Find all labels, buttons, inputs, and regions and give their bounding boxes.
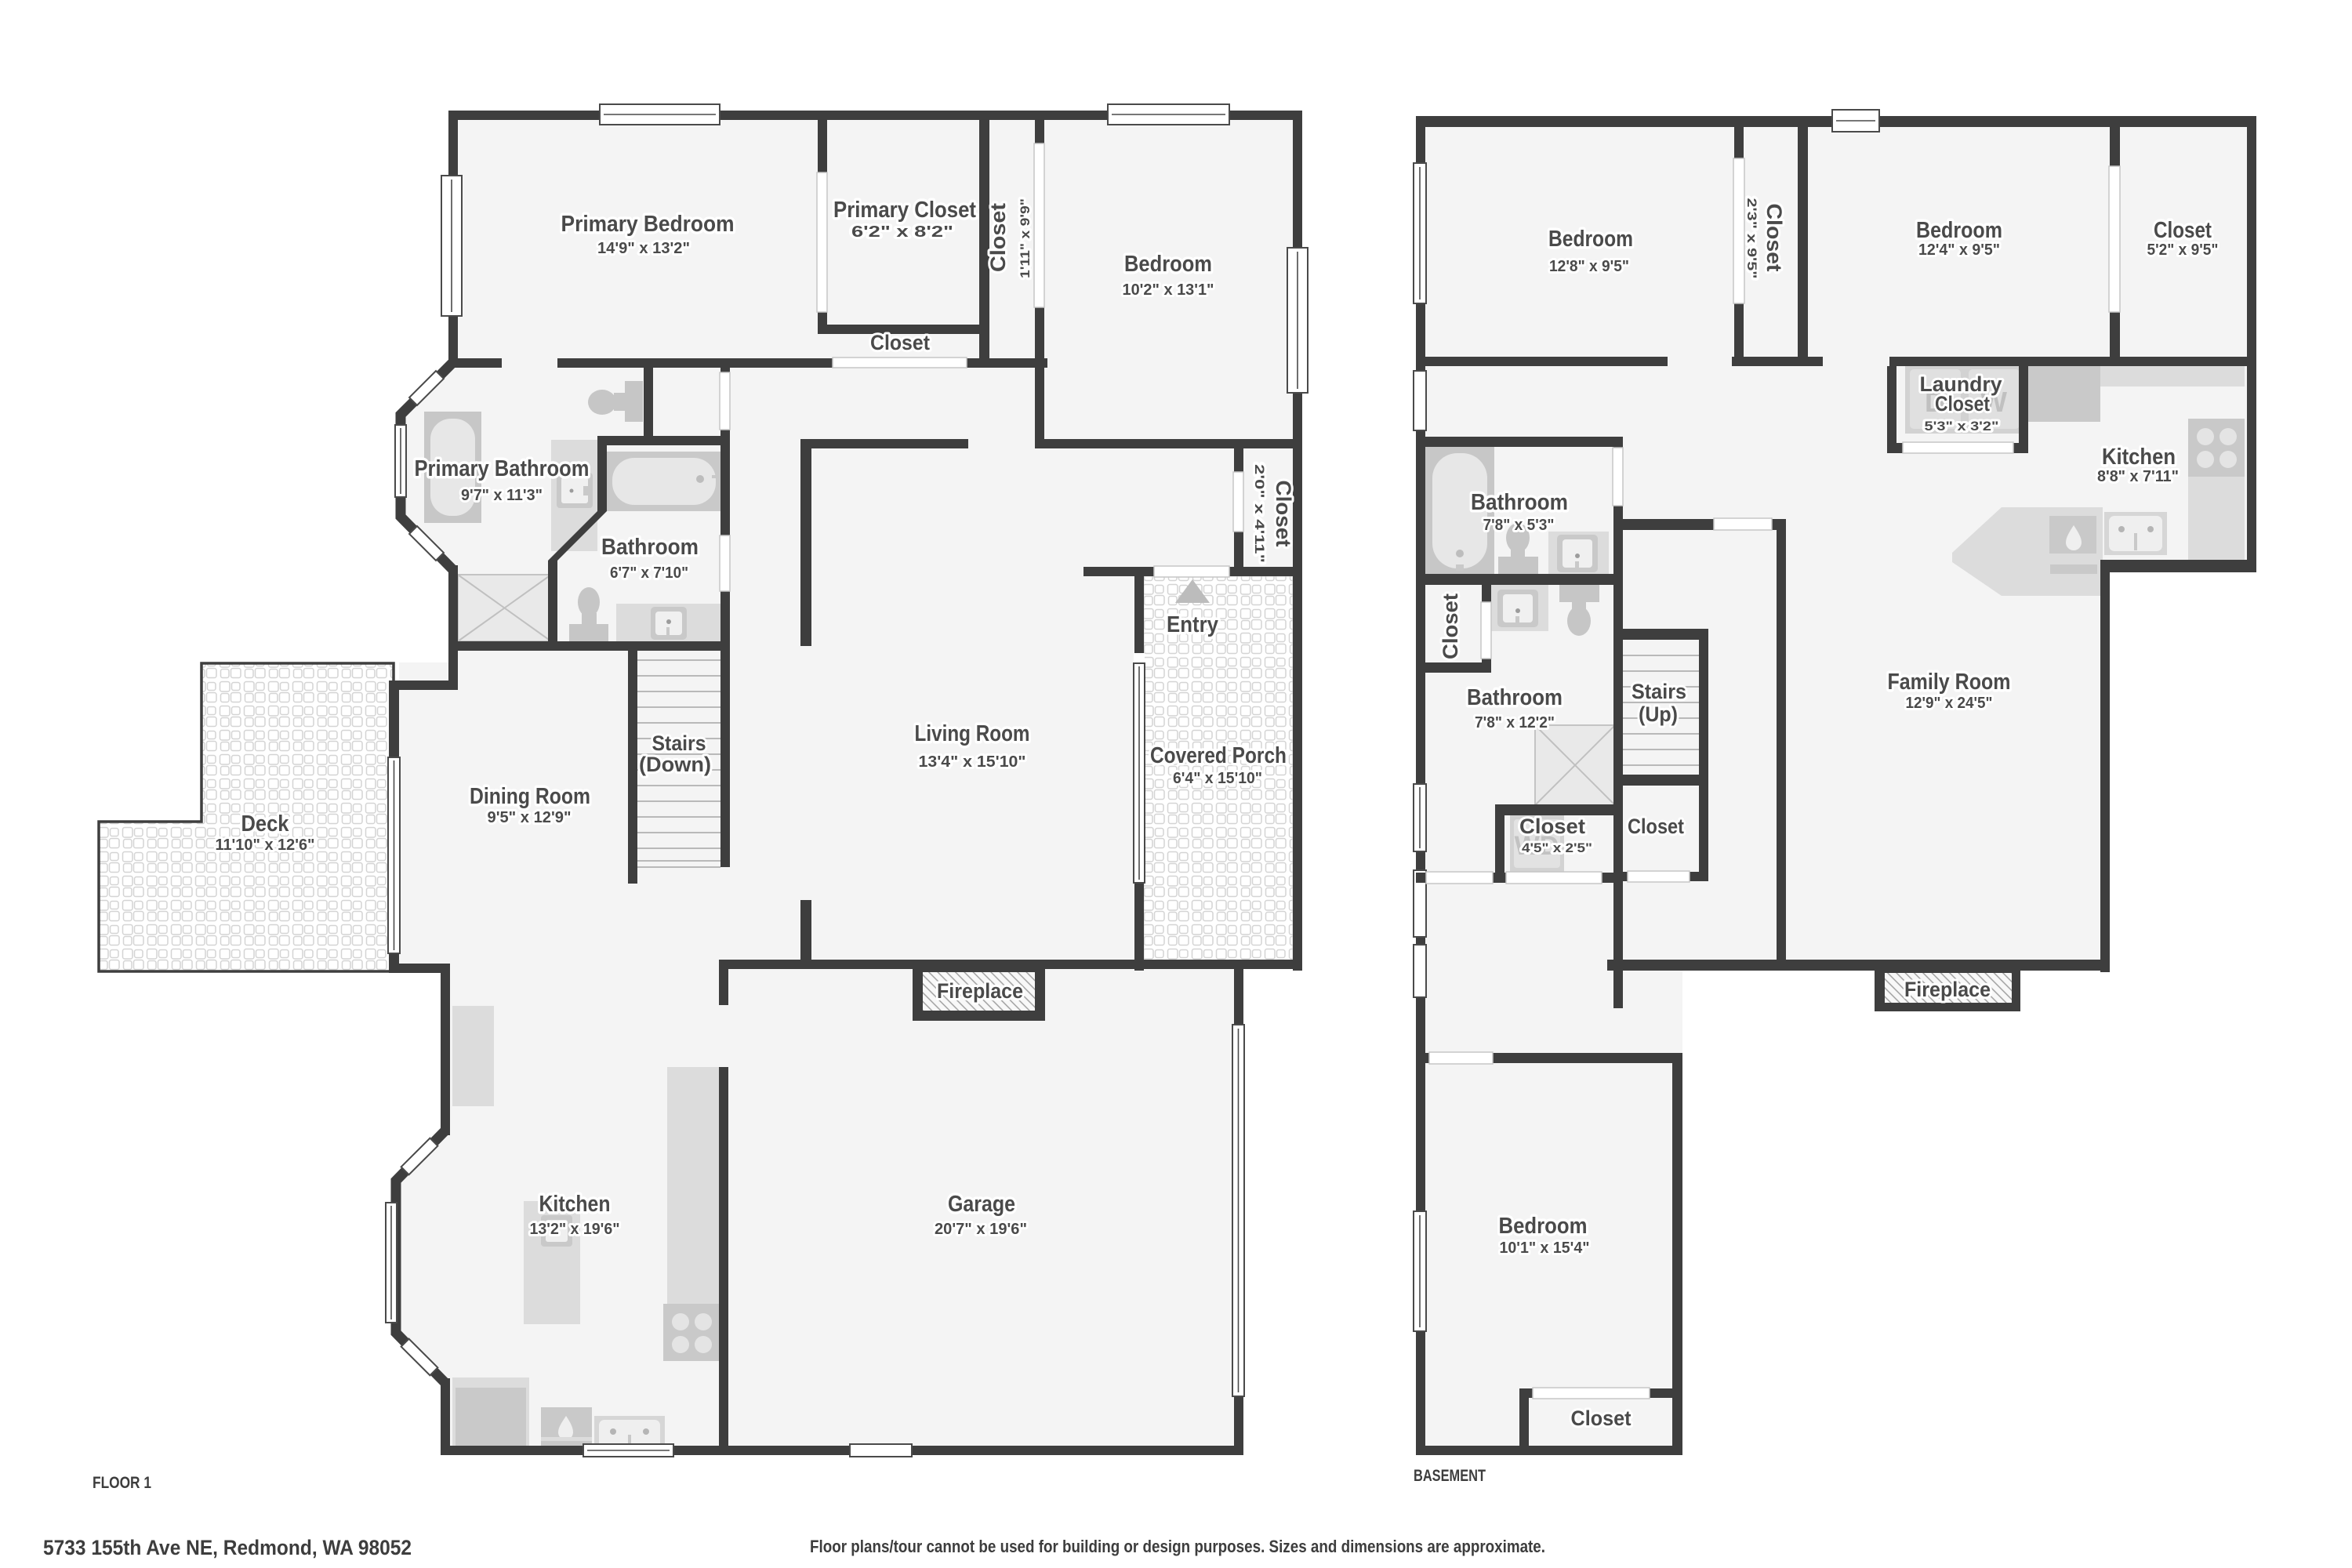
- svg-text:Closet: Closet: [2154, 218, 2212, 243]
- svg-text:14'9" x 13'2": 14'9" x 13'2": [597, 240, 690, 257]
- svg-text:Bedroom: Bedroom: [1916, 218, 2002, 243]
- svg-text:12'4" x 9'5": 12'4" x 9'5": [1918, 241, 2000, 259]
- svg-text:Bathroom: Bathroom: [601, 535, 699, 560]
- svg-text:Closet: Closet: [870, 331, 930, 354]
- svg-text:Closet: Closet: [1519, 815, 1585, 838]
- svg-text:Garage: Garage: [948, 1192, 1015, 1217]
- svg-text:2'0" x 4'11": 2'0" x 4'11": [1252, 464, 1267, 563]
- svg-text:7'8" x 5'3": 7'8" x 5'3": [1483, 517, 1555, 534]
- svg-text:Closet: Closet: [1439, 593, 1462, 659]
- svg-text:BASEMENT: BASEMENT: [1414, 1467, 1486, 1485]
- svg-text:Stairs: Stairs: [1632, 680, 1686, 703]
- svg-text:8'8" x 7'11": 8'8" x 7'11": [2097, 468, 2179, 485]
- svg-text:Bedroom: Bedroom: [1499, 1214, 1588, 1239]
- svg-text:Stairs: Stairs: [652, 731, 706, 755]
- svg-text:Deck: Deck: [241, 811, 290, 837]
- svg-text:2'3" x 9'5": 2'3" x 9'5": [1744, 198, 1759, 279]
- svg-text:Family Room: Family Room: [1888, 670, 2011, 695]
- svg-text:13'4" x 15'10": 13'4" x 15'10": [919, 753, 1026, 771]
- svg-text:6'4" x 15'10": 6'4" x 15'10": [1173, 770, 1262, 787]
- svg-text:20'7" x 19'6": 20'7" x 19'6": [935, 1221, 1027, 1238]
- svg-text:Closet: Closet: [1571, 1406, 1632, 1430]
- svg-text:13'2" x 19'6": 13'2" x 19'6": [530, 1221, 620, 1238]
- svg-text:Bathroom: Bathroom: [1471, 490, 1568, 515]
- svg-text:Primary Bedroom: Primary Bedroom: [561, 212, 735, 237]
- svg-text:Floor plans/tour cannot be use: Floor plans/tour cannot be used for buil…: [810, 1537, 1545, 1556]
- svg-text:6'7" x 7'10": 6'7" x 7'10": [610, 564, 688, 582]
- svg-text:Closet: Closet: [1935, 392, 1990, 416]
- svg-text:(Up): (Up): [1639, 702, 1678, 726]
- svg-text:Closet: Closet: [1762, 204, 1786, 272]
- svg-text:6'2" x 8'2": 6'2" x 8'2": [851, 223, 953, 241]
- svg-text:Living Room: Living Room: [915, 721, 1030, 746]
- svg-text:9'5" x 12'9": 9'5" x 12'9": [488, 809, 572, 826]
- svg-text:Primary Bathroom: Primary Bathroom: [415, 456, 590, 481]
- svg-text:Fireplace: Fireplace: [1904, 978, 1991, 1001]
- svg-text:Closet: Closet: [986, 203, 1010, 272]
- svg-text:11'10" x 12'6": 11'10" x 12'6": [216, 837, 315, 854]
- svg-text:4'5" x 2'5": 4'5" x 2'5": [1522, 840, 1592, 855]
- svg-text:12'9" x 24'5": 12'9" x 24'5": [1906, 695, 1993, 712]
- svg-text:5'2" x 9'5": 5'2" x 9'5": [2147, 241, 2219, 259]
- svg-text:Covered Porch: Covered Porch: [1150, 743, 1287, 768]
- svg-text:(Down): (Down): [639, 753, 711, 776]
- svg-text:FLOOR 1: FLOOR 1: [93, 1474, 151, 1492]
- svg-text:Kitchen: Kitchen: [2102, 445, 2176, 470]
- svg-text:Bedroom: Bedroom: [1548, 227, 1633, 252]
- svg-text:Closet: Closet: [1272, 481, 1295, 547]
- svg-text:1'11" x 9'9": 1'11" x 9'9": [1018, 198, 1033, 278]
- svg-text:5733 155th Ave NE, Redmond, WA: 5733 155th Ave NE, Redmond, WA 98052: [43, 1536, 412, 1559]
- svg-text:Entry: Entry: [1167, 612, 1218, 637]
- svg-text:Closet: Closet: [1628, 815, 1684, 838]
- svg-text:10'1" x 15'4": 10'1" x 15'4": [1500, 1240, 1590, 1257]
- svg-text:Dining Room: Dining Room: [470, 784, 590, 809]
- svg-text:Primary Closet: Primary Closet: [833, 198, 976, 223]
- svg-text:Bathroom: Bathroom: [1467, 685, 1563, 710]
- svg-text:Bedroom: Bedroom: [1124, 252, 1212, 277]
- svg-text:Kitchen: Kitchen: [539, 1192, 611, 1217]
- svg-text:7'8" x 12'2": 7'8" x 12'2": [1475, 714, 1555, 731]
- svg-text:9'7" x 11'3": 9'7" x 11'3": [461, 487, 543, 504]
- svg-text:10'2" x 13'1": 10'2" x 13'1": [1123, 281, 1214, 299]
- svg-text:Fireplace: Fireplace: [937, 979, 1023, 1003]
- svg-text:12'8" x 9'5": 12'8" x 9'5": [1549, 258, 1629, 275]
- svg-text:5'3" x 3'2": 5'3" x 3'2": [1925, 419, 1999, 434]
